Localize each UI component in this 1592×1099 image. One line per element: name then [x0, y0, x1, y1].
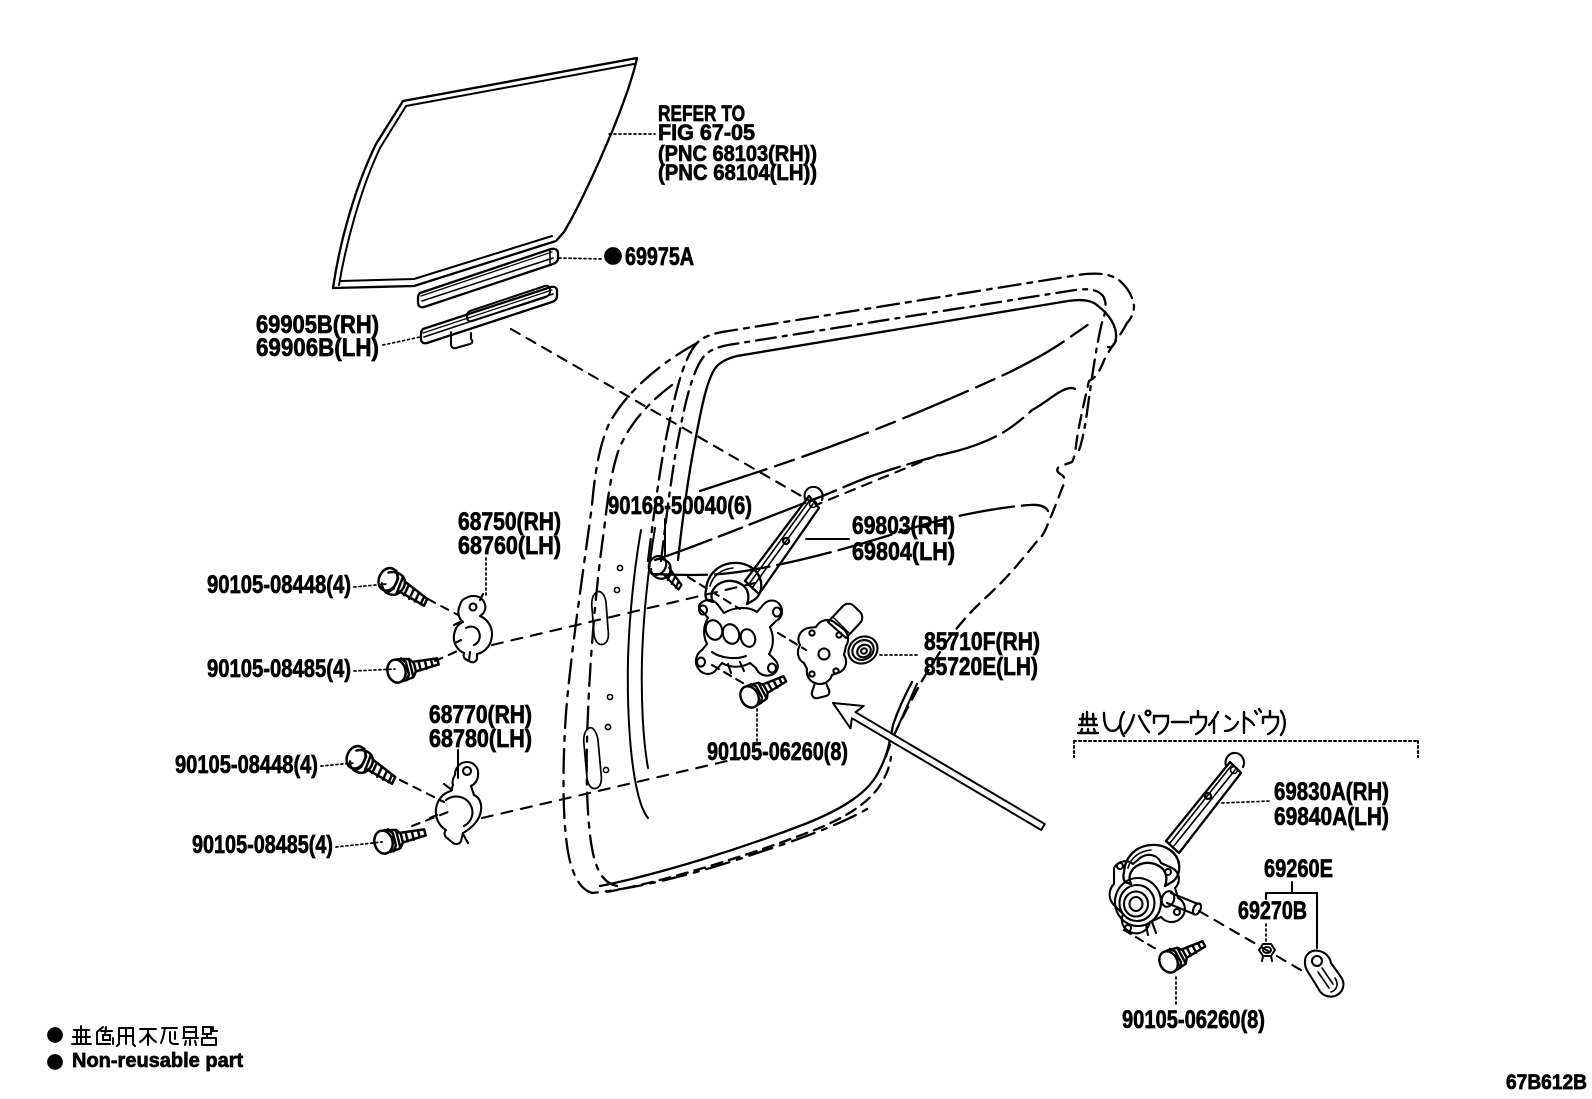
svg-text:69804(LH): 69804(LH) — [852, 538, 955, 566]
svg-text:69830A(RH): 69830A(RH) — [1274, 778, 1389, 806]
svg-text:69260E: 69260E — [1264, 855, 1333, 883]
svg-text:(PNC 68104(LH)): (PNC 68104(LH)) — [658, 160, 817, 185]
svg-text:90168-50040(6): 90168-50040(6) — [608, 492, 752, 520]
svg-text:90105-06260(8): 90105-06260(8) — [707, 738, 848, 766]
svg-text:68780(LH): 68780(LH) — [429, 725, 532, 753]
svg-text:85710F(RH): 85710F(RH) — [924, 628, 1040, 656]
svg-text:69975A: 69975A — [625, 243, 694, 271]
svg-text:90105-06260(8): 90105-06260(8) — [1122, 1006, 1265, 1034]
svg-text:69906B(LH): 69906B(LH) — [256, 334, 379, 362]
svg-text:90105-08485(4): 90105-08485(4) — [207, 655, 351, 683]
svg-text:69840A(LH): 69840A(LH) — [1274, 803, 1389, 831]
svg-text:69803(RH): 69803(RH) — [852, 512, 955, 540]
svg-text:85720E(LH): 85720E(LH) — [924, 653, 1038, 681]
svg-text:67B612B: 67B612B — [1506, 1071, 1587, 1094]
svg-text:68760(LH): 68760(LH) — [458, 532, 561, 560]
svg-text:90105-08485(4): 90105-08485(4) — [192, 831, 333, 859]
svg-text:90105-08448(4): 90105-08448(4) — [207, 571, 351, 599]
svg-text:90105-08448(4): 90105-08448(4) — [175, 751, 318, 779]
svg-text:69270B: 69270B — [1238, 897, 1307, 925]
svg-text:Non-reusable part: Non-reusable part — [72, 1050, 243, 1072]
